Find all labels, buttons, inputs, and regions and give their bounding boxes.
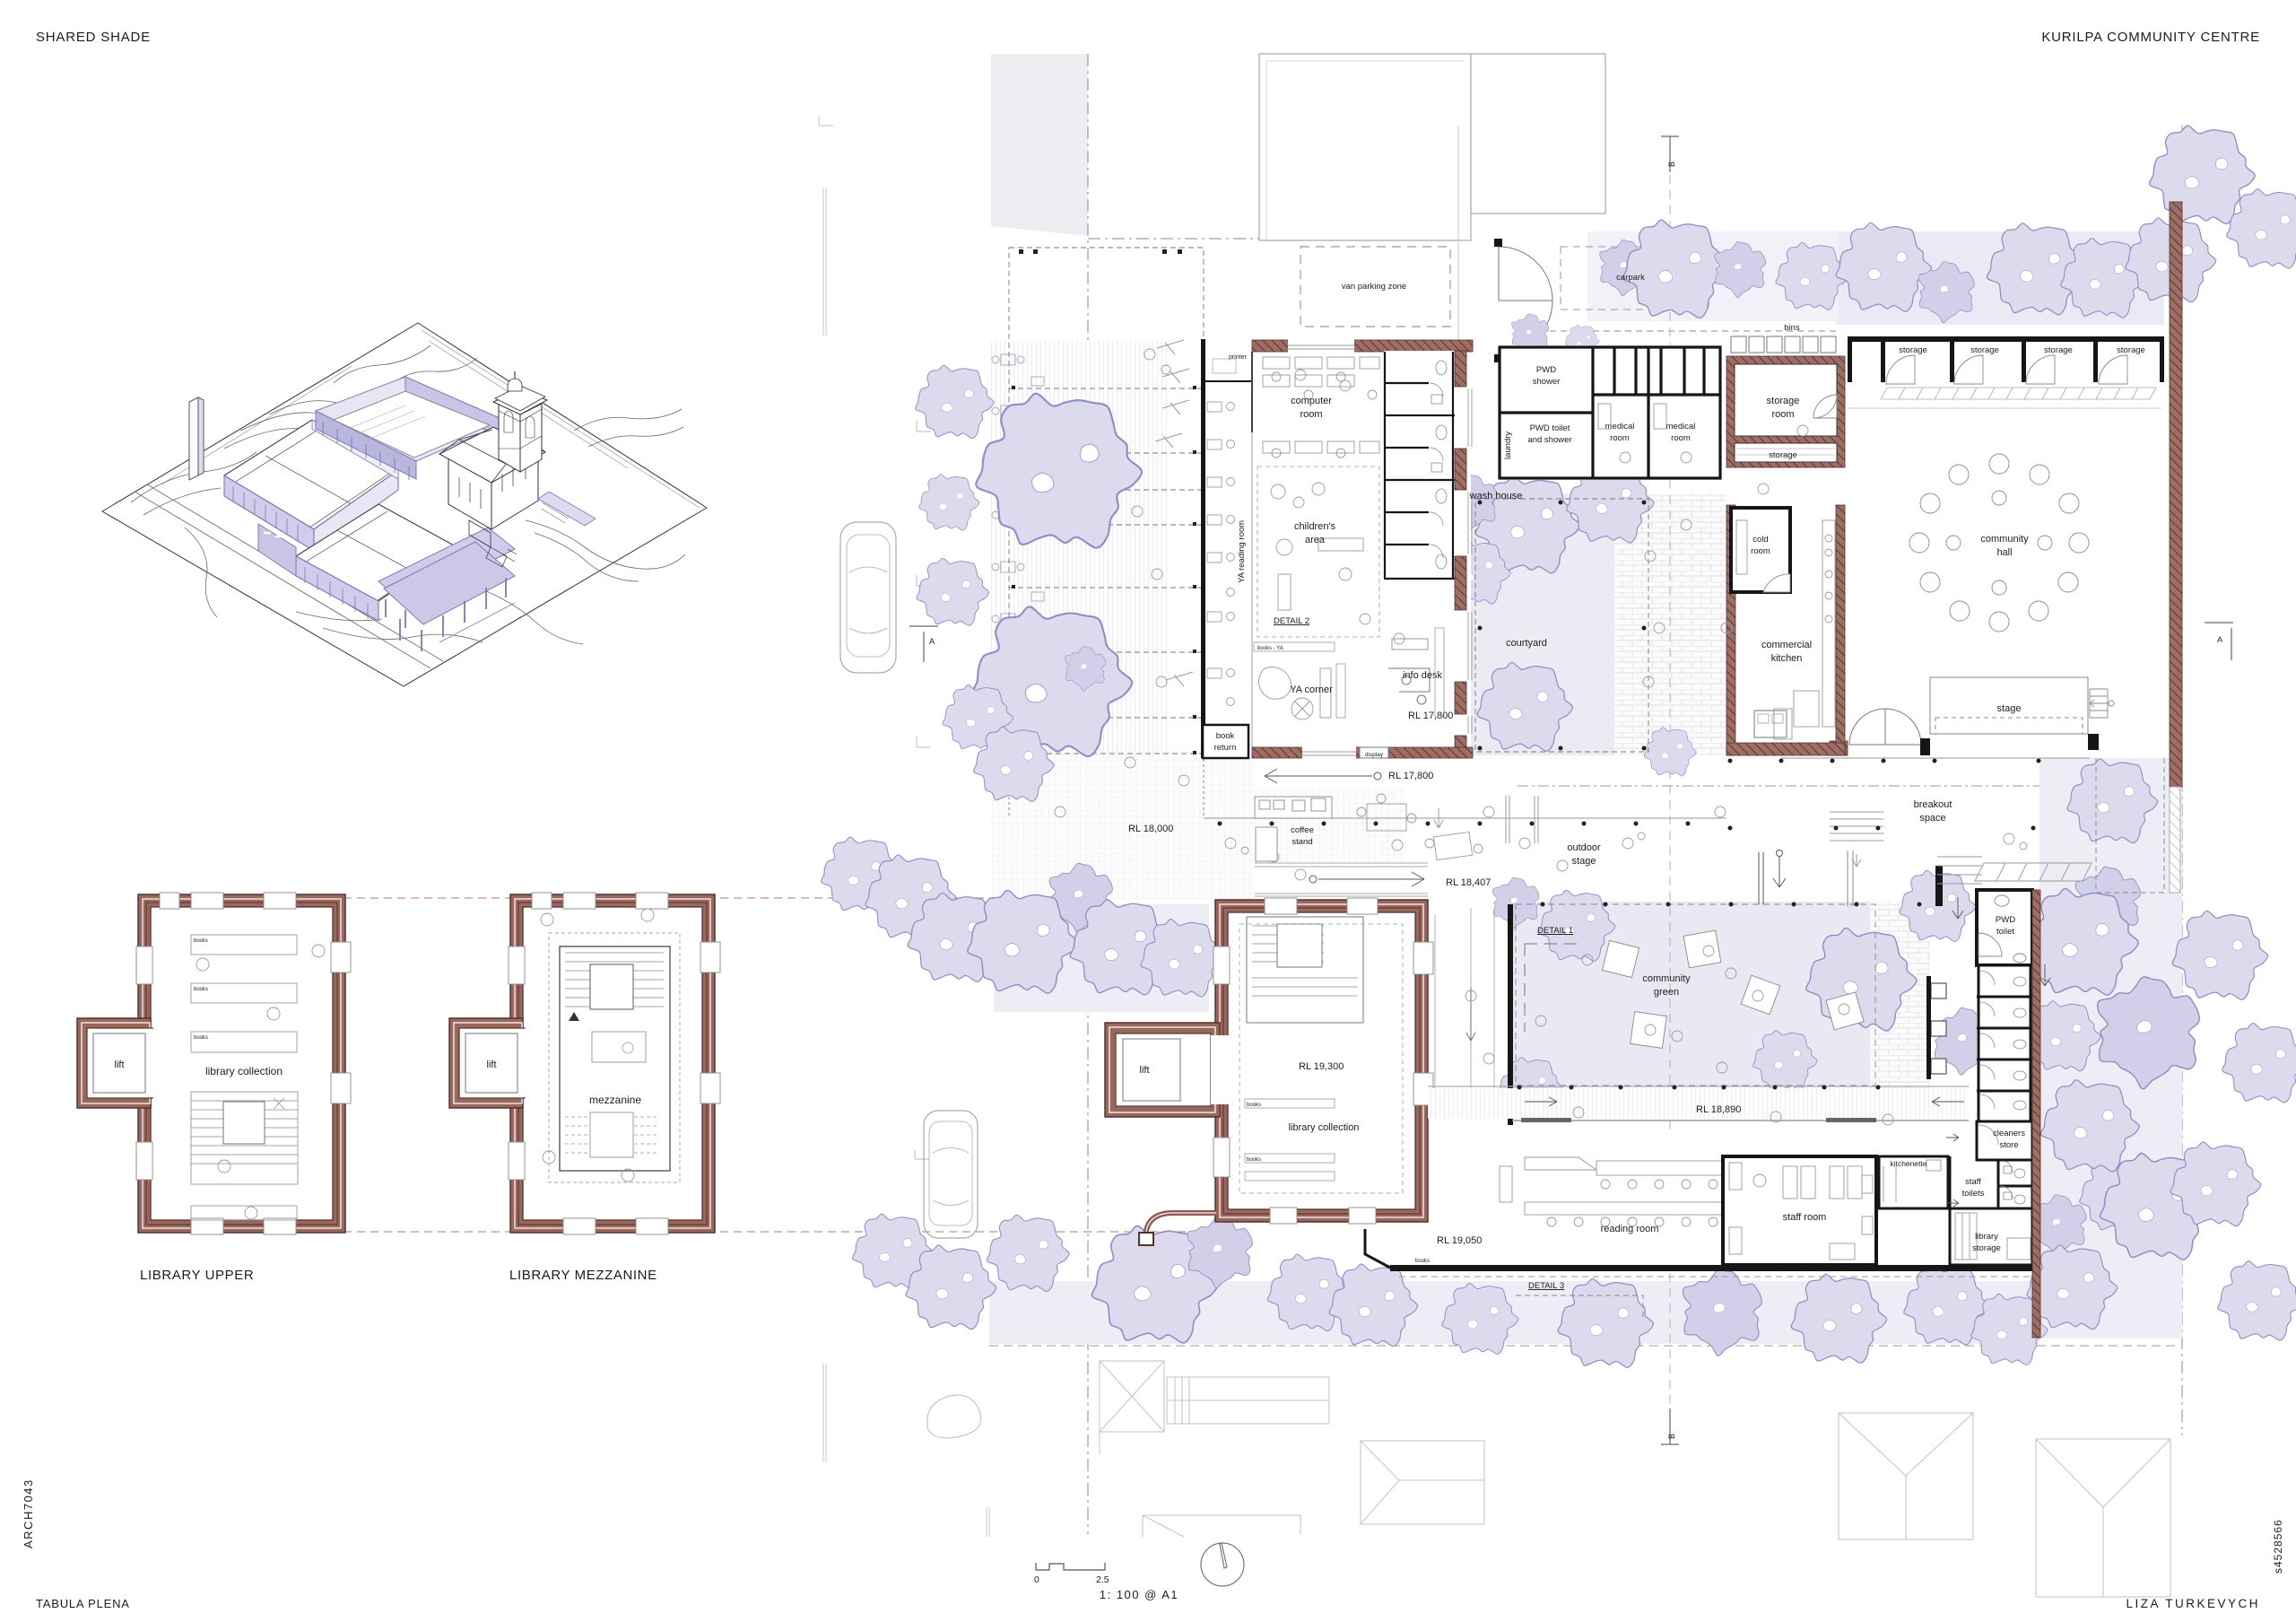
svg-text:PWD: PWD <box>1996 915 2015 925</box>
svg-text:kitchenette: kitchenette <box>1890 1159 1926 1168</box>
svg-text:stage: stage <box>1997 703 2022 714</box>
svg-text:outdoor: outdoor <box>1567 842 1601 853</box>
svg-text:toilets: toilets <box>1962 1189 1985 1199</box>
svg-text:info desk: info desk <box>1403 670 1443 681</box>
svg-text:YA corner: YA corner <box>1290 685 1333 695</box>
svg-text:library: library <box>1975 1232 1998 1242</box>
svg-text:hall: hall <box>1996 547 2012 558</box>
svg-text:mezzanine: mezzanine <box>589 1094 641 1106</box>
svg-text:shower: shower <box>1533 377 1561 387</box>
svg-text:display: display <box>1365 752 1384 758</box>
svg-text:stage: stage <box>1572 856 1596 867</box>
svg-text:storage: storage <box>1972 1243 2001 1253</box>
svg-text:courtyard: courtyard <box>1506 638 1547 649</box>
svg-text:and shower: and shower <box>1527 435 1571 445</box>
svg-text:SHARED SHADE: SHARED SHADE <box>36 30 151 45</box>
svg-text:DETAIL 1: DETAIL 1 <box>1537 926 1573 936</box>
svg-text:PWD: PWD <box>1536 365 1556 375</box>
svg-text:books: books <box>194 1035 208 1041</box>
svg-text:KURILPA COMMUNITY CENTRE: KURILPA COMMUNITY CENTRE <box>2041 30 2260 45</box>
svg-text:community: community <box>1642 973 1691 984</box>
svg-text:carpark: carpark <box>1616 273 1645 283</box>
svg-text:medical: medical <box>1666 422 1696 432</box>
svg-text:library collection: library collection <box>205 1065 283 1077</box>
svg-text:kitchen: kitchen <box>1771 653 1803 664</box>
svg-text:medical: medical <box>1605 422 1635 432</box>
svg-text:room: room <box>1671 433 1691 443</box>
svg-text:B: B <box>1667 161 1676 167</box>
svg-text:PWD toilet: PWD toilet <box>1530 423 1570 433</box>
svg-text:staff room: staff room <box>1783 1212 1827 1223</box>
svg-text:DETAIL 2: DETAIL 2 <box>1274 616 1309 626</box>
svg-text:YA reading room: YA reading room <box>1237 520 1247 583</box>
svg-text:storage: storage <box>1970 345 1999 355</box>
svg-text:return: return <box>1214 743 1237 753</box>
svg-text:TABULA PLENA: TABULA PLENA <box>36 1597 130 1610</box>
svg-text:A: A <box>2217 635 2222 644</box>
svg-text:children's: children's <box>1294 521 1336 532</box>
svg-text:room: room <box>1610 433 1630 443</box>
svg-text:space: space <box>1919 813 1945 824</box>
svg-text:RL 19,300: RL 19,300 <box>1299 1061 1344 1072</box>
svg-text:green: green <box>1654 987 1679 998</box>
svg-text:RL 18,890: RL 18,890 <box>1696 1104 1741 1115</box>
svg-text:books: books <box>1247 1157 1261 1163</box>
svg-text:store: store <box>1999 1140 2018 1150</box>
svg-text:community: community <box>1980 534 2029 545</box>
svg-text:RL 18,000: RL 18,000 <box>1128 824 1173 834</box>
svg-text:toilet: toilet <box>1996 927 2014 937</box>
svg-text:room: room <box>1751 546 1770 556</box>
svg-text:stand: stand <box>1291 837 1312 847</box>
svg-text:books: books <box>1247 1103 1261 1108</box>
svg-text:breakout: breakout <box>1914 799 1952 810</box>
svg-text:lift: lift <box>115 1060 125 1070</box>
svg-text:reading room: reading room <box>1601 1224 1659 1234</box>
svg-text:printer: printer <box>1229 354 1248 361</box>
svg-text:RL 17,800: RL 17,800 <box>1408 711 1453 721</box>
svg-text:cold: cold <box>1752 535 1768 545</box>
svg-text:RL 17,800: RL 17,800 <box>1388 771 1433 781</box>
svg-text:room: room <box>1771 409 1794 420</box>
svg-text:computer: computer <box>1291 396 1332 406</box>
svg-text:storage: storage <box>2044 345 2073 355</box>
svg-text:s4528566: s4528566 <box>2272 1519 2284 1574</box>
svg-text:room: room <box>1300 409 1322 420</box>
svg-text:DETAIL 3: DETAIL 3 <box>1528 1281 1564 1291</box>
svg-text:commercial: commercial <box>1761 640 1812 650</box>
svg-text:area: area <box>1305 535 1326 545</box>
svg-text:RL 18,407: RL 18,407 <box>1446 877 1491 888</box>
svg-text:LIBRARY UPPER: LIBRARY UPPER <box>140 1268 254 1283</box>
svg-text:books: books <box>1415 1259 1430 1264</box>
svg-text:0: 0 <box>1034 1574 1039 1585</box>
svg-text:coffee: coffee <box>1291 825 1314 835</box>
svg-text:books: books <box>194 987 208 992</box>
svg-text:book: book <box>1216 731 1235 741</box>
svg-text:books: books <box>194 938 208 944</box>
svg-text:lift: lift <box>487 1060 497 1070</box>
svg-text:1: 100 @ A1: 1: 100 @ A1 <box>1100 1588 1178 1601</box>
svg-text:2.5: 2.5 <box>1096 1574 1109 1585</box>
svg-text:LIBRARY MEZZANINE: LIBRARY MEZZANINE <box>509 1268 657 1283</box>
svg-text:B: B <box>1667 1434 1676 1439</box>
svg-text:storage: storage <box>1899 345 1927 355</box>
svg-text:RL 19,050: RL 19,050 <box>1437 1235 1482 1246</box>
svg-text:books - YA: books - YA <box>1257 646 1283 651</box>
svg-text:staff: staff <box>1965 1177 1981 1187</box>
svg-text:A: A <box>929 637 935 646</box>
svg-text:storage: storage <box>1769 450 1797 460</box>
svg-text:laundry: laundry <box>1503 432 1513 459</box>
svg-text:wash house: wash house <box>1469 491 1523 501</box>
svg-text:storage: storage <box>2117 345 2145 355</box>
svg-text:library collection: library collection <box>1289 1122 1360 1133</box>
svg-text:lift: lift <box>1140 1065 1150 1076</box>
svg-text:cleaners: cleaners <box>1993 1129 2025 1138</box>
svg-text:ARCH7043: ARCH7043 <box>22 1478 35 1548</box>
svg-text:storage: storage <box>1767 396 1800 406</box>
svg-text:LIZA TURKEVYCH: LIZA TURKEVYCH <box>2126 1597 2260 1610</box>
svg-text:van parking zone: van parking zone <box>1342 282 1406 292</box>
